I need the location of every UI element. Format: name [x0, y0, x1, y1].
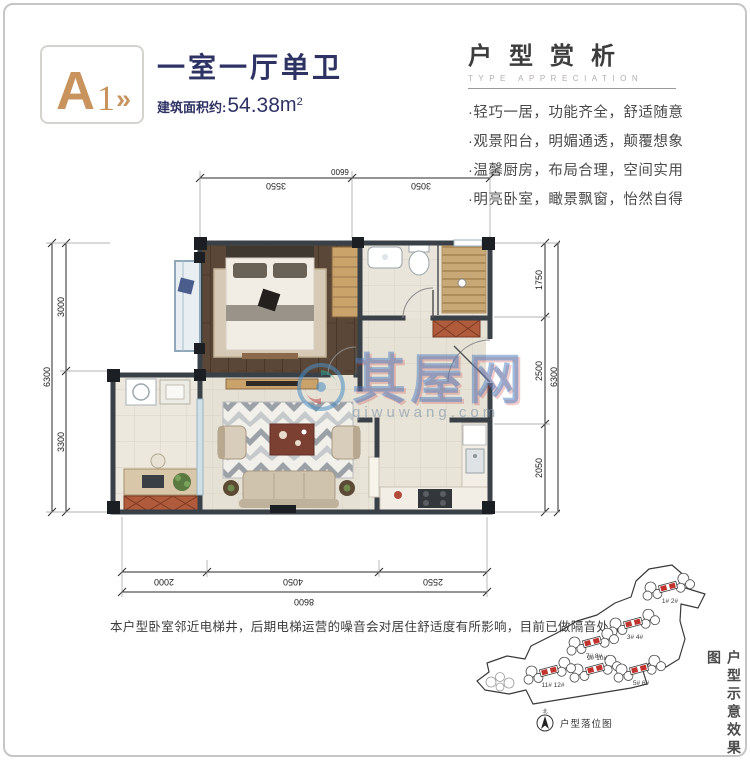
- svg-text:2500: 2500: [534, 361, 544, 381]
- analysis-divider: [468, 88, 676, 89]
- side-vertical-label: 户型示意效果图: [704, 650, 744, 760]
- svg-text:北: 北: [542, 708, 547, 715]
- svg-text:3000: 3000: [56, 297, 66, 317]
- dimension-top: 3550 3050 6600: [196, 167, 494, 239]
- sofa: [243, 471, 335, 503]
- coffee-table: [270, 424, 314, 455]
- bed-pillow: [273, 263, 307, 278]
- unit-logo-letter: A: [56, 64, 95, 118]
- bathroom-window: [454, 240, 482, 246]
- building-cluster: 1# 2#: [640, 571, 696, 605]
- chevrons-right-icon: »: [116, 80, 128, 118]
- title-block: 一室一厅单卫 建筑面积约: 54.38 m 2: [157, 46, 343, 116]
- hall-furniture: [433, 320, 480, 337]
- site-plan-drawing: 1# 2# 3# 4#: [473, 563, 708, 758]
- shoe-cabinet: [433, 320, 480, 337]
- washing-machine: [126, 379, 156, 405]
- floor-plan-drawing: 3550 3050 6600 6300 3000 3300: [30, 155, 560, 615]
- svg-text:3550: 3550: [266, 181, 286, 191]
- svg-text:2050: 2050: [534, 458, 544, 478]
- feature-item: ·轻巧一居，功能齐全，舒适随意: [468, 99, 726, 128]
- svg-text:4050: 4050: [283, 577, 303, 587]
- svg-text:2550: 2550: [423, 577, 443, 587]
- bay-window: [175, 261, 200, 351]
- analysis-title: 户型赏析: [468, 36, 726, 71]
- svg-text:6300: 6300: [42, 367, 52, 387]
- svg-text:8600: 8600: [294, 597, 314, 607]
- tv: [246, 381, 298, 386]
- fridge: [463, 425, 486, 445]
- balcony-glass-door: [197, 399, 203, 495]
- bed-bench: [242, 353, 298, 359]
- feature-item: ·观景阳台，明媚通透，颠覆想象: [468, 128, 726, 157]
- svg-text:9# 10#: 9# 10#: [587, 655, 607, 662]
- building-cluster-faint: [486, 673, 514, 692]
- compass-icon: 北: [537, 708, 553, 731]
- dimension-left: 6300 3000 3300: [42, 239, 110, 516]
- svg-text:2000: 2000: [154, 577, 174, 587]
- svg-text:3# 4#: 3# 4#: [627, 634, 644, 641]
- unit-logo-box: A 1 »: [40, 45, 144, 124]
- svg-text:11# 12#: 11# 12#: [541, 682, 564, 689]
- svg-text:5# 6#: 5# 6#: [633, 680, 650, 687]
- kitchen-sink: [466, 449, 484, 473]
- svg-text:3300: 3300: [56, 432, 66, 452]
- svg-text:1# 2#: 1# 2#: [662, 598, 679, 605]
- bed-pillow: [233, 263, 267, 278]
- svg-text:3050: 3050: [411, 181, 431, 191]
- area-superscript: 2: [297, 97, 303, 108]
- area-value: 54.38: [227, 95, 280, 116]
- sliding-door: [369, 457, 379, 497]
- shower-drain: [458, 279, 466, 287]
- area-unit: m: [280, 95, 297, 116]
- balcony-chair: [151, 454, 165, 468]
- toilet: [409, 251, 429, 275]
- dimension-bottom: 2000 4050 2550 8600: [118, 517, 491, 607]
- site-plan: 1# 2# 3# 4#: [473, 563, 708, 758]
- dimension-right: 1750 2500 2050 6300: [494, 239, 560, 516]
- area-line: 建筑面积约: 54.38 m 2: [157, 95, 343, 116]
- site-plan-caption: 户型落位图: [560, 718, 613, 730]
- area-label: 建筑面积约:: [157, 99, 226, 116]
- analysis-subtitle: TYPE APPRECIATION: [468, 74, 726, 83]
- floor-plan: 3550 3050 6600 6300 3000 3300: [30, 155, 560, 615]
- unit-logo-number: 1: [97, 78, 115, 118]
- svg-text:6300: 6300: [549, 367, 559, 387]
- svg-text:6600: 6600: [331, 167, 349, 176]
- page-title: 一室一厅单卫: [157, 46, 343, 86]
- food-bowl: [394, 491, 402, 499]
- laptop: [142, 475, 164, 488]
- stove: [418, 489, 452, 508]
- svg-text:1750: 1750: [534, 270, 544, 290]
- floorplan-page: A 1 » 一室一厅单卫 建筑面积约: 54.38 m 2 户型赏析 TYPE …: [0, 0, 750, 760]
- building-cluster: 11# 12#: [521, 655, 577, 689]
- building-cluster: 5# 6#: [611, 653, 667, 687]
